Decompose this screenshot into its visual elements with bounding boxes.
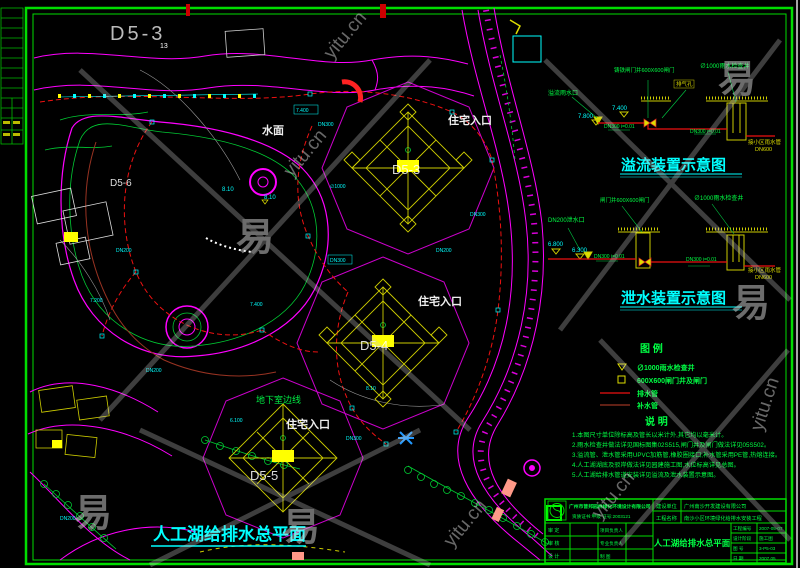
- notes-line-2: 2.雨水检查井做法详见国标图集02S515,闸门井及闸门做法详见05S502。: [572, 441, 770, 449]
- drain-pipe-label-2: DN300 i=0.01: [686, 257, 717, 263]
- margin-table: [1, 8, 23, 144]
- tb-f2v: 施工图: [759, 535, 773, 542]
- drain-pipe-label-1: DN300 i=0.01: [594, 254, 625, 260]
- micro-label: DN200: [436, 248, 452, 254]
- notes-heading: 说 明: [645, 415, 668, 428]
- tower-label-d5-3: D5-3: [392, 162, 420, 177]
- watermark-site: yitu.cn: [440, 496, 491, 552]
- tb-f3v: 3-P5-03: [759, 546, 776, 551]
- legend-symbol-gate: [618, 376, 625, 383]
- notes-line-3: 3.溢流管、泄水管采用UPVC加筋管,橡胶圈接口;补水管采用PE管,热熔连接。: [572, 451, 781, 459]
- drain-lv2: 6.300: [572, 248, 588, 254]
- entrance-label-2: 住宅入口: [418, 294, 462, 308]
- micro-label: DN300: [330, 258, 346, 264]
- overflow-vent-label: 排气孔: [676, 80, 693, 88]
- cad-drawing: D5-3 13 水面 住宅入口 住宅入口 住宅入口 D5-3 D5-4 D5-5…: [0, 0, 800, 568]
- landscape-layer: [41, 55, 549, 549]
- watermark-glyph: 易: [732, 283, 770, 325]
- drain-inlet-label: DN200泄水口: [548, 216, 585, 224]
- drain-lv1: 6.800: [548, 242, 564, 248]
- watermark-glyph: 易: [74, 493, 112, 535]
- entrance-label-1: 住宅入口: [448, 113, 492, 127]
- tb-f4v: 2007.05: [759, 556, 776, 561]
- tb-project: 南沙小区环境绿化给排水安装工程: [684, 514, 762, 522]
- overflow-gate-label: 铸铁闸门井600X600闸门: [614, 66, 675, 74]
- entrance-label-3: 住宅入口: [286, 417, 330, 431]
- micro-label: DN200: [116, 248, 132, 254]
- micro-label: 7.400: [250, 302, 263, 308]
- watermark-glyph: 易: [718, 59, 756, 101]
- legend-heading: 图 例: [640, 342, 663, 355]
- tb-p3a: 设 计: [548, 553, 559, 560]
- elev-label-1: 8.10: [222, 187, 234, 193]
- fence-line: [58, 94, 258, 97]
- tb-f4l: 日 期: [733, 556, 744, 562]
- micro-label: DN300: [318, 122, 334, 128]
- overflow-outlet-2: DN600: [755, 147, 772, 153]
- tb-p3b: 制 图: [600, 553, 611, 560]
- roads-layer: [28, 8, 552, 560]
- tb-drawing-title: 人工湖给排水总平面: [654, 538, 731, 548]
- overflow-title: 溢流装置示意图: [621, 156, 726, 174]
- overflow-outlet-1: 接小区雨水管: [748, 138, 782, 146]
- tb-p2a: 审 核: [548, 540, 559, 547]
- watermark-glyph: 易: [236, 217, 274, 259]
- notes-line-1: 1.本图尺寸单位除标高及管长以米计外,其它均以毫米计。: [572, 431, 727, 439]
- tb-f1l: 工程编号: [733, 525, 752, 532]
- crosswalk-marks: [292, 479, 517, 560]
- legend-item-4: 补水管: [636, 401, 658, 410]
- watermark-site: yitu.cn: [747, 375, 784, 434]
- building-label-d5-6: D5-6: [110, 178, 132, 189]
- drain-well-label: ∅1000雨水检查井: [694, 194, 743, 202]
- tb-f3l: 图 号: [733, 546, 744, 552]
- area-label: D5-3: [110, 23, 165, 45]
- label-13: 13: [160, 43, 168, 50]
- micro-label: 7.400: [296, 108, 309, 114]
- tb-owner: 广州南沙开发建设有限公司: [684, 502, 746, 510]
- overflow-lv1: 7.400: [612, 106, 628, 112]
- drain-gate-label: 闸门井600X600闸门: [600, 196, 650, 204]
- micro-label: ∅1000: [330, 184, 346, 190]
- title-block: 广州市普邦园林绿化环境设计有限公司 资质证书:甲级 证号:2003121 建设单…: [545, 499, 786, 563]
- tb-p1a: 审 定: [548, 527, 559, 534]
- legend-item-2: 600X600闸门井及闸门: [637, 376, 707, 385]
- tb-f2l: 设计阶段: [733, 535, 752, 542]
- drain-title: 泄水装置示意图: [621, 289, 726, 307]
- tb-project-label: 工程名称: [656, 514, 677, 522]
- cad-drawing-canvas: D5-3 13 水面 住宅入口 住宅入口 住宅入口 D5-3 D5-4 D5-5…: [0, 0, 800, 568]
- notes-line-5: 5.人工湖给排水管道安装详见溢流及泄水装置示意图。: [572, 471, 719, 479]
- legend-item-1: ∅1000雨水检查井: [637, 363, 695, 372]
- micro-label: 8.10: [366, 386, 376, 392]
- micro-label: DN300: [470, 212, 486, 218]
- tb-p1b: 项目负责人: [600, 527, 623, 534]
- plan-labels: D5-3 13 水面 住宅入口 住宅入口 住宅入口 D5-3 D5-4 D5-5…: [110, 23, 492, 483]
- basement-edge-label: 地下室边线: [256, 394, 301, 405]
- micro-label: 6.100: [230, 418, 243, 424]
- watermark-site: yitu.cn: [320, 8, 371, 64]
- overflow-pipe-label-2: DN300 i=0.01: [690, 129, 721, 135]
- water-surface-label: 水面: [262, 123, 284, 137]
- overflow-lv2: 7.800: [578, 114, 594, 120]
- micro-label: DN300: [346, 436, 362, 442]
- watermark-glyph: 易: [282, 507, 320, 549]
- micro-label: 7.200: [90, 298, 103, 304]
- lowrise-buildings: [36, 386, 109, 458]
